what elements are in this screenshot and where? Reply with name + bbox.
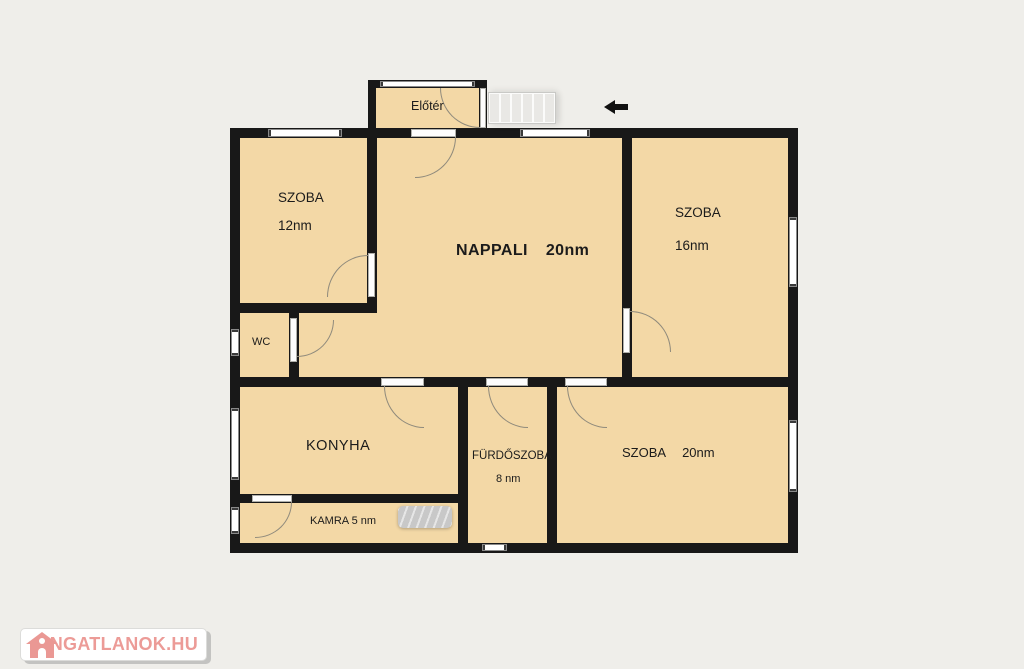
stair-step bbox=[512, 94, 521, 122]
window-furdoszoba-bottom bbox=[482, 544, 507, 551]
room-area-szoba20: 20nm bbox=[682, 445, 715, 460]
stair-step bbox=[534, 94, 543, 122]
door-sill-szoba20 bbox=[565, 378, 607, 386]
door-sill-furdoszoba bbox=[486, 378, 528, 386]
wall-szoba12-bottom bbox=[230, 303, 377, 313]
room-label-szoba12: SZOBA bbox=[278, 191, 324, 206]
room-label-szoba20: SZOBA 20nm bbox=[622, 445, 715, 460]
door-leaf-entrance bbox=[480, 88, 486, 128]
window-konyha-left bbox=[231, 408, 239, 480]
window-szoba16-right bbox=[789, 217, 797, 287]
stair-step bbox=[490, 94, 499, 122]
window-nappali-top bbox=[520, 129, 590, 137]
room-label-nappali: NAPPALI 20nm bbox=[456, 242, 589, 260]
room-name-nappali: NAPPALI bbox=[456, 242, 528, 260]
stair-step bbox=[501, 94, 510, 122]
wall-furdoszoba-right bbox=[547, 387, 557, 543]
house-icon bbox=[26, 632, 37, 658]
kamra-fixture-hatch bbox=[398, 506, 452, 528]
wall-furdoszoba-left bbox=[458, 387, 468, 543]
window-szoba12-top bbox=[268, 129, 342, 137]
house-round-window bbox=[39, 638, 45, 644]
house-door bbox=[38, 648, 46, 658]
room-label-eloter: Előtér bbox=[411, 100, 444, 114]
room-label-konyha: KONYHA bbox=[306, 439, 370, 455]
room-label-furdoszoba: FÜRDŐSZOBA bbox=[472, 450, 552, 463]
door-sill-nappali bbox=[411, 129, 456, 137]
door-sill-konyha bbox=[381, 378, 424, 386]
entrance-arrow-shaft bbox=[614, 104, 628, 110]
room-area-furdoszoba: 8 nm bbox=[496, 473, 520, 485]
window-kamra-left bbox=[231, 507, 239, 534]
door-sill-kamra bbox=[252, 495, 292, 502]
window-wc-left bbox=[231, 329, 239, 356]
ingatlanok-logo: INGATLANOK.HU bbox=[20, 628, 207, 661]
entrance-stairs bbox=[488, 92, 556, 124]
room-label-wc: WC bbox=[252, 336, 270, 348]
door-leaf-wc bbox=[290, 318, 297, 362]
watermark-text: INGATLANOK.HU bbox=[44, 634, 198, 655]
door-leaf-szoba16 bbox=[623, 308, 630, 353]
door-leaf-szoba12 bbox=[368, 253, 375, 297]
window-szoba20-right bbox=[789, 420, 797, 492]
stair-step bbox=[523, 94, 532, 122]
room-name-szoba20: SZOBA bbox=[622, 445, 666, 460]
window-eloter-top bbox=[380, 81, 475, 87]
floorplan-canvas: Előtér SZOBA 12nm NAPPALI 20nm SZOBA 16n… bbox=[0, 0, 1024, 669]
room-area-szoba16: 16nm bbox=[675, 239, 709, 254]
room-label-szoba16: SZOBA bbox=[675, 206, 721, 221]
room-label-kamra: KAMRA 5 nm bbox=[310, 515, 376, 527]
room-area-nappali: 20nm bbox=[546, 242, 589, 260]
wall-outer-bottom bbox=[230, 543, 798, 553]
stair-step bbox=[545, 94, 554, 122]
room-area-szoba12: 12nm bbox=[278, 219, 312, 234]
